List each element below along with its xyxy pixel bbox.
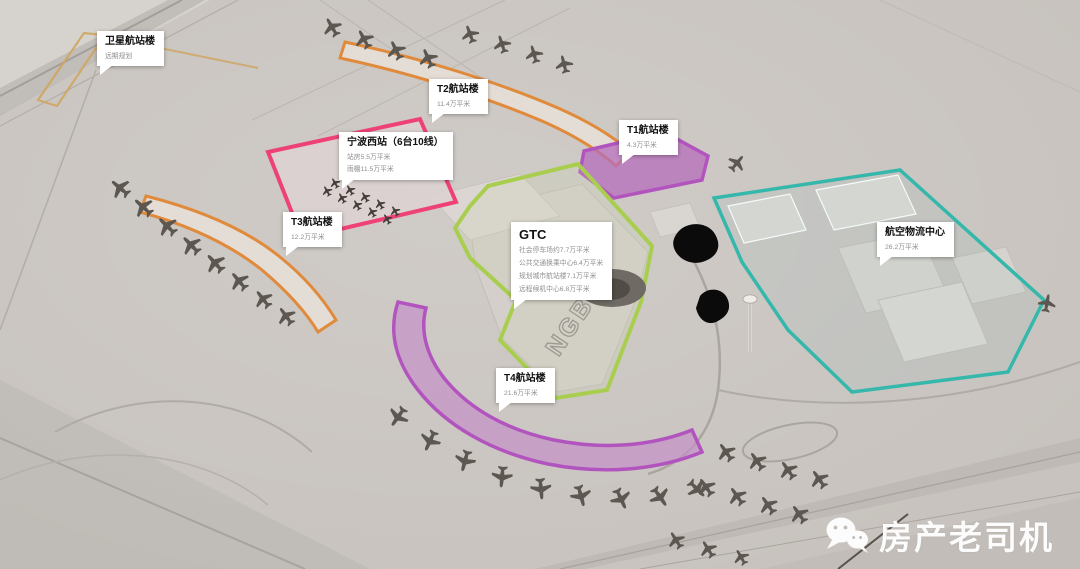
label-subtext: 雨棚11.5万平米 — [347, 165, 444, 175]
airport-masterplan: NGB 卫星航站楼 远期规划 T2航站楼 11.4万平米 T1航站楼 4.3万平… — [0, 0, 1080, 569]
label-gtc: GTC 社会停车场约7.7万平米 公共交通换乘中心6.4万平米 规划城市航站楼7… — [511, 222, 612, 300]
label-subtext: 社会停车场约7.7万平米 — [519, 246, 603, 256]
label-subtext: 21.6万平米 — [504, 389, 546, 399]
label-t2-terminal: T2航站楼 11.4万平米 — [429, 79, 488, 114]
watermark-text: 房产老司机 — [879, 511, 1054, 559]
label-t1-terminal: T1航站楼 4.3万平米 — [619, 120, 678, 155]
label-title: GTC — [519, 227, 603, 243]
wechat-icon — [825, 516, 869, 554]
label-logistics-center: 航空物流中心 26.2万平米 — [877, 222, 954, 257]
label-subtext: 11.4万平米 — [437, 100, 479, 110]
label-subtext: 远程候机中心6.8万平米 — [519, 285, 603, 295]
label-title: T4航站楼 — [504, 373, 546, 386]
label-satellite-terminal: 卫星航站楼 远期规划 — [97, 31, 164, 66]
label-subtext: 12.2万平米 — [291, 233, 333, 243]
label-title: T2航站楼 — [437, 84, 479, 97]
label-title: 宁波西站（6台10线） — [347, 137, 444, 150]
label-t4-terminal: T4航站楼 21.6万平米 — [496, 368, 555, 403]
label-title: 卫星航站楼 — [105, 36, 155, 49]
label-title: T1航站楼 — [627, 125, 669, 138]
watermark: 房产老司机 — [825, 511, 1054, 559]
label-subtext: 站房5.5万平米 — [347, 153, 444, 163]
label-subtext: 26.2万平米 — [885, 243, 945, 253]
label-ningbo-west-station: 宁波西站（6台10线） 站房5.5万平米 雨棚11.5万平米 — [339, 132, 453, 180]
label-subtext: 公共交通换乘中心6.4万平米 — [519, 259, 603, 269]
label-subtext: 规划城市航站楼7.1万平米 — [519, 272, 603, 282]
label-title: T3航站楼 — [291, 217, 333, 230]
label-title: 航空物流中心 — [885, 227, 945, 240]
label-subtext: 远期规划 — [105, 52, 155, 62]
label-t3-terminal: T3航站楼 12.2万平米 — [283, 212, 342, 247]
label-subtext: 4.3万平米 — [627, 141, 669, 151]
